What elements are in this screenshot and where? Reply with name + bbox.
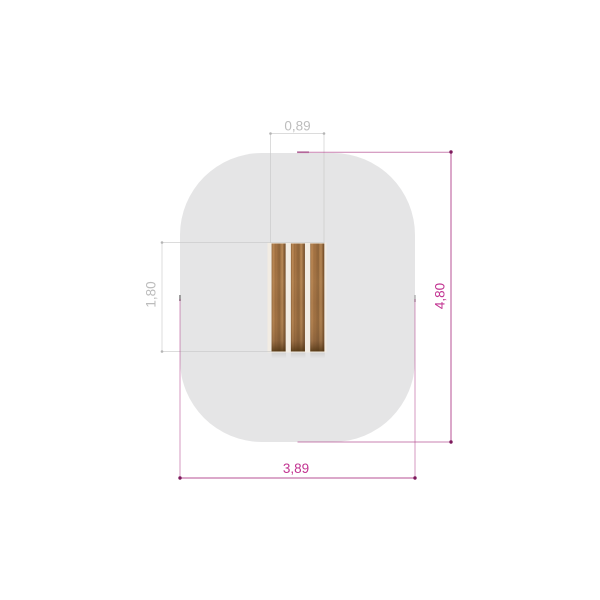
svg-text:4,80: 4,80 — [433, 283, 448, 309]
svg-text:0,89: 0,89 — [284, 119, 310, 134]
svg-text:1,80: 1,80 — [144, 281, 159, 307]
svg-text:3,89: 3,89 — [283, 461, 309, 476]
